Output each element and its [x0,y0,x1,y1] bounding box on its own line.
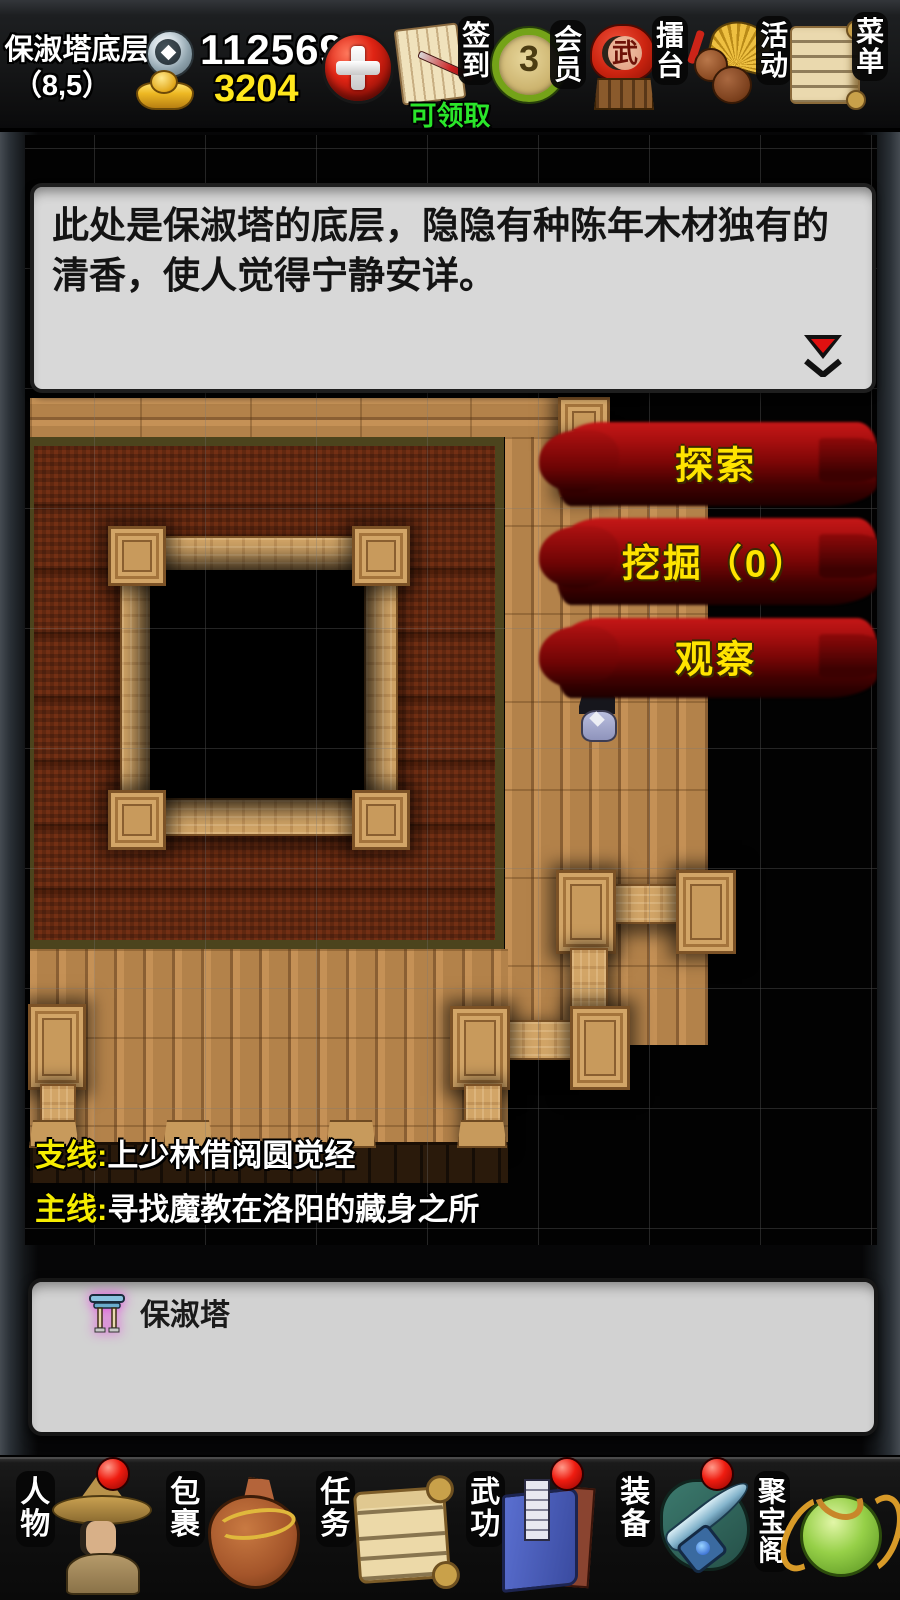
post-mid-left [556,870,616,954]
beam-left [120,580,154,794]
side-quest-prefix: 支线: [35,1138,107,1173]
nav-item-bag[interactable]: 包裹 [158,1461,308,1600]
nav-item-martial[interactable]: 武功 [458,1461,608,1600]
nav-item-quest[interactable]: 任务 [308,1461,458,1600]
main-quest-prefix: 主线: [35,1192,107,1227]
gourd-icon [712,66,752,104]
notification-dot [550,1457,584,1491]
gold-ingot-icon [136,70,190,110]
menu-label: 菜单 [852,12,888,81]
beam-lower-wing [504,1020,574,1060]
explore-button[interactable]: 探索 [555,422,877,506]
beam-right [364,580,398,794]
game-screen: { "colors": { "accent_red": "#a80f0f", "… [0,0,900,1600]
martial-book-icon [502,1469,602,1595]
nav-item-treasure[interactable]: 聚宝阁 [746,1461,896,1600]
plus-glyph [336,61,380,75]
side-quest-text: 上少林借阅圆觉经 [107,1138,355,1173]
hilt-gem [696,1541,710,1555]
post-west [28,1004,86,1090]
sign-in-label: 签到 [458,16,494,85]
bag-label: 包裹 [166,1471,205,1547]
map-void [150,570,364,798]
post-lower-right [570,1006,630,1090]
drum-face-char: 武 [608,36,642,70]
bottom-nav-bar: 人物 包裹 任务 武功 [0,1455,900,1600]
quest-scroll-icon [352,1469,452,1595]
equipment-label: 装备 [616,1471,655,1547]
ingot-knob [150,70,178,94]
notification-dot [96,1457,130,1491]
side-quest-line[interactable]: 支线:上少林借阅圆觉经 [35,1130,655,1175]
character-icon [52,1469,152,1595]
arena-label: 擂台 [652,16,688,85]
nav-item-equipment[interactable]: 装备 [608,1461,758,1600]
location-panel: 保淑塔 [28,1278,878,1436]
top-status-bar: 保淑塔底层 （8,5） 112569 3204 签到 可领取 3 会员 武 [0,0,900,132]
character-label: 人物 [16,1471,55,1547]
scroll-paper [353,1486,451,1584]
notification-dot [700,1457,734,1491]
character-shoulders [66,1553,140,1595]
member-button[interactable]: 3 会员 [492,14,592,124]
main-quest-text: 寻找魔教在洛阳的藏身之所 [107,1192,479,1227]
nav-item-character[interactable]: 人物 [8,1461,158,1600]
map-floor-lower [30,949,508,1142]
map-floor-top-strip [30,398,586,437]
drum-stand [594,78,654,110]
room-description-box: 此处是保淑塔的底层，隐隐有种陈年木材独有的清香，使人觉得宁静安详。 [30,183,876,393]
equipment-icon [652,1469,752,1595]
post-top-right [352,526,410,586]
book-title-strip [524,1479,550,1541]
menu-button[interactable]: 菜单 [790,14,890,124]
sign-in-button[interactable]: 签到 可领取 [398,14,498,124]
bag-icon [202,1469,302,1595]
dig-button[interactable]: 挖掘（0） [555,518,877,605]
room-description-text: 此处是保淑塔的底层，隐隐有种陈年木材独有的清香，使人觉得宁静安详。 [52,201,842,301]
scroll-down-arrow-icon[interactable] [800,333,846,377]
activity-label: 活动 [756,16,792,85]
arena-drum-icon: 武 [590,24,656,82]
explore-button-label: 探索 [555,434,877,489]
activity-button[interactable]: 活动 [692,14,792,124]
location-list-item[interactable]: 保淑塔 [88,1290,230,1334]
observe-button-label: 观察 [555,628,877,683]
character-face [86,1521,116,1555]
beam-top [160,536,356,574]
gold-amount: 3204 [214,68,299,111]
martial-label: 武功 [466,1471,505,1547]
arena-button[interactable]: 武 擂台 [590,14,690,124]
observe-button[interactable]: 观察 [555,618,877,698]
beam-right-wing [610,884,680,924]
treasure-icon [786,1469,886,1595]
post-mid-right [676,870,736,954]
quest-label: 任务 [316,1471,355,1547]
beam-bottom [160,798,356,836]
location-coordinates: （8,5） [2,62,122,104]
post-bottom-right [352,790,410,850]
post-top-left [108,526,166,586]
location-item-label: 保淑塔 [140,1290,230,1334]
post-bottom-left [108,790,166,850]
main-quest-line[interactable]: 主线:寻找魔教在洛阳的藏身之所 [35,1184,655,1229]
gate-icon [88,1291,126,1333]
dig-button-label: 挖掘（0） [555,532,877,587]
recharge-plus-button[interactable] [322,32,394,104]
post-lower-left [450,1006,510,1090]
beam-mid-down [570,948,608,1014]
menu-scroll-icon [790,26,860,104]
member-label: 会员 [550,20,586,89]
